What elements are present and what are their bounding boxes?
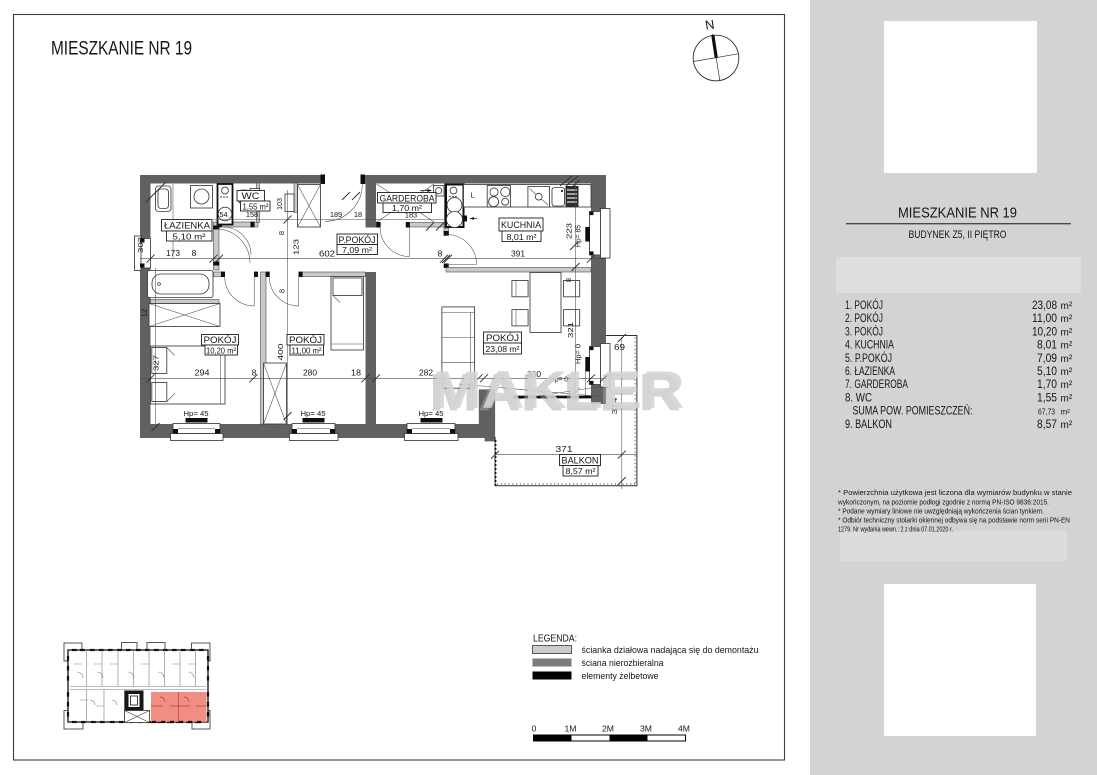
svg-text:m²: m² — [1061, 367, 1073, 378]
svg-text:67,73: 67,73 — [1038, 406, 1055, 416]
svg-text:8: 8 — [278, 289, 287, 293]
svg-text:ŁAZIENKA: ŁAZIENKA — [164, 221, 211, 232]
svg-text:10,20 m²: 10,20 m² — [206, 345, 236, 355]
svg-text:LEGENDA:: LEGENDA: — [533, 634, 577, 645]
svg-text:m²: m² — [1061, 301, 1073, 312]
svg-text:7,09 m²: 7,09 m² — [342, 245, 372, 255]
svg-text:MAKLER: MAKLER — [433, 361, 685, 420]
svg-text:KUCHNIA: KUCHNIA — [501, 220, 542, 231]
svg-text:2. POKÓJ: 2. POKÓJ — [845, 310, 883, 325]
svg-text:8,57: 8,57 — [1037, 417, 1057, 431]
svg-text:189: 189 — [330, 210, 342, 219]
svg-text:54: 54 — [219, 210, 227, 219]
svg-text:11,00 m²: 11,00 m² — [292, 345, 322, 355]
svg-text:Hp= 85: Hp= 85 — [574, 225, 583, 247]
svg-text:8. WC: 8. WC — [845, 390, 872, 404]
svg-text:POKÓJ: POKÓJ — [486, 333, 519, 344]
svg-text:* Odbiór techniczny stolarki o: * Odbiór techniczny stolarki okiennej od… — [838, 515, 1070, 524]
svg-text:69: 69 — [614, 342, 625, 352]
svg-text:elementy żelbetowe: elementy żelbetowe — [582, 671, 659, 681]
svg-text:280: 280 — [303, 368, 317, 378]
svg-text:8,01: 8,01 — [1037, 338, 1057, 352]
svg-text:11,00: 11,00 — [1032, 311, 1057, 325]
svg-text:Hp= 45: Hp= 45 — [301, 409, 326, 418]
svg-text:* Powierzchnia użytkowa jest l: * Powierzchnia użytkowa jest liczona dla… — [838, 488, 1072, 497]
svg-text:* Podane wymiary liniowe nie u: * Podane wymiary liniowe nie uwzględniaj… — [838, 506, 1044, 515]
svg-text:7,09: 7,09 — [1037, 351, 1057, 365]
svg-text:m²: m² — [1061, 380, 1073, 391]
svg-text:8: 8 — [564, 278, 573, 282]
svg-text:5. P.POKÓJ: 5. P.POKÓJ — [845, 350, 892, 365]
svg-text:18: 18 — [351, 368, 361, 378]
svg-text:m²: m² — [1061, 354, 1073, 365]
svg-text:223: 223 — [565, 223, 574, 239]
svg-text:SUMA POW. POMIESZCZEŃ:: SUMA POW. POMIESZCZEŃ: — [853, 403, 973, 418]
svg-text:m²: m² — [1061, 314, 1073, 325]
svg-text:321: 321 — [566, 322, 575, 338]
svg-text:m²: m² — [1061, 341, 1073, 352]
svg-text:1,70: 1,70 — [1037, 377, 1057, 391]
svg-text:2M: 2M — [602, 724, 614, 734]
svg-text:8,57 m²: 8,57 m² — [566, 466, 596, 476]
svg-text:8: 8 — [277, 231, 286, 235]
svg-text:391: 391 — [511, 249, 525, 259]
svg-text:23,08: 23,08 — [1032, 298, 1057, 312]
svg-text:5,10 m²: 5,10 m² — [173, 232, 206, 242]
svg-text:Hp= 45: Hp= 45 — [184, 409, 209, 418]
svg-text:400: 400 — [276, 344, 285, 361]
svg-text:327: 327 — [152, 355, 161, 371]
svg-text:m²: m² — [1061, 327, 1073, 338]
svg-text:8,01 m²: 8,01 m² — [507, 232, 537, 242]
svg-text:8: 8 — [438, 249, 443, 259]
svg-text:BALKON: BALKON — [562, 455, 599, 466]
svg-text:MIESZKANIE NR 19: MIESZKANIE NR 19 — [51, 39, 192, 60]
svg-text:294: 294 — [195, 368, 210, 378]
svg-text:123: 123 — [292, 239, 301, 255]
svg-text:1,55: 1,55 — [1037, 390, 1057, 404]
svg-text:1M: 1M — [565, 724, 577, 734]
svg-text:18: 18 — [354, 210, 362, 219]
svg-text:L: L — [471, 191, 475, 200]
svg-text:10,20: 10,20 — [1032, 324, 1057, 338]
svg-text:3. POKÓJ: 3. POKÓJ — [845, 323, 883, 338]
svg-text:3M: 3M — [640, 724, 652, 734]
svg-text:9. BALKON: 9. BALKON — [845, 417, 892, 431]
svg-text:1,70 m²: 1,70 m² — [392, 203, 422, 213]
svg-text:602: 602 — [319, 249, 335, 259]
svg-text:5,10: 5,10 — [1037, 364, 1057, 378]
svg-text:1,55 m²: 1,55 m² — [243, 201, 269, 211]
svg-text:8: 8 — [192, 248, 197, 258]
svg-text:103: 103 — [277, 198, 284, 210]
svg-text:BUDYNEK Z5, II PIĘTRO: BUDYNEK Z5, II PIĘTRO — [909, 229, 1007, 241]
svg-text:MIESZKANIE NR 19: MIESZKANIE NR 19 — [898, 206, 1017, 222]
svg-text:m²: m² — [1061, 407, 1071, 416]
svg-text:0: 0 — [532, 724, 537, 734]
svg-text:1. POKÓJ: 1. POKÓJ — [845, 297, 883, 312]
svg-text:4M: 4M — [678, 724, 690, 734]
svg-text:m²: m² — [1061, 420, 1073, 431]
svg-text:7. GARDEROBA: 7. GARDEROBA — [845, 377, 909, 391]
svg-text:ścianka działowa nadająca się: ścianka działowa nadająca się do demonta… — [582, 645, 759, 655]
svg-text:371: 371 — [556, 444, 573, 454]
svg-text:ściana nierozbieralna: ściana nierozbieralna — [582, 658, 664, 668]
svg-text:12: 12 — [140, 309, 149, 317]
svg-text:303: 303 — [136, 237, 145, 253]
svg-text:23,08 m²: 23,08 m² — [486, 344, 520, 354]
svg-text:4. KUCHNIA: 4. KUCHNIA — [845, 338, 895, 352]
svg-text:m²: m² — [1061, 393, 1073, 404]
svg-text:1279. Nr wydania wewn.: 2 z dn: 1279. Nr wydania wewn.: 2 z dnia 07.01.2… — [838, 524, 953, 533]
svg-text:wykończonym, na poziomie podło: wykończonym, na poziomie podłogi zgodnie… — [837, 497, 1049, 506]
svg-text:6. ŁAZIENKA: 6. ŁAZIENKA — [845, 364, 896, 378]
